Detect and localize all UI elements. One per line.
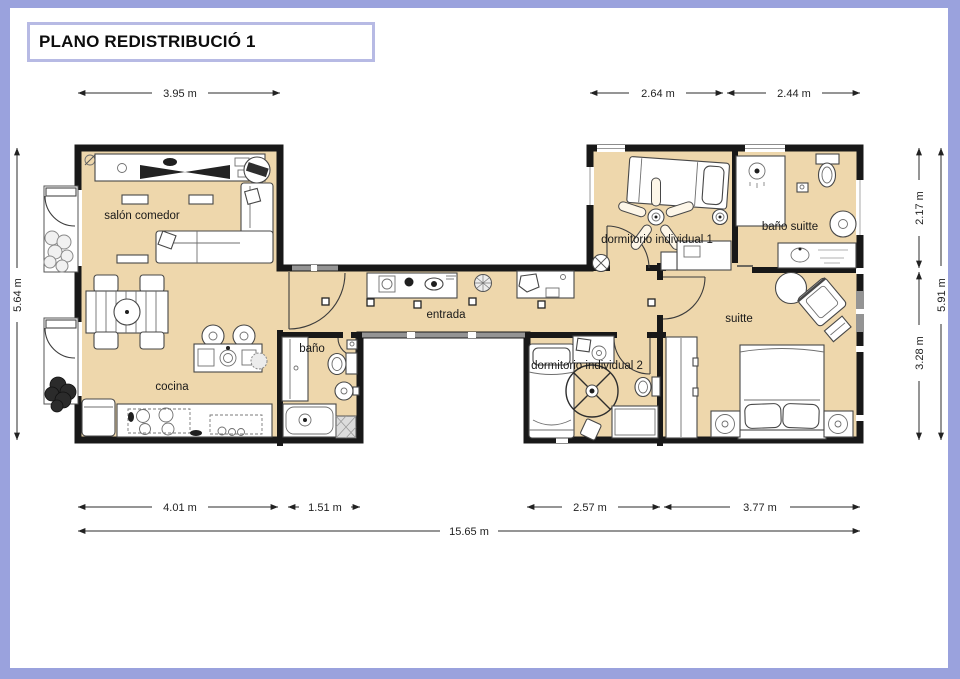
label-cocina: cocina xyxy=(155,381,189,393)
pillow xyxy=(245,188,261,204)
shower xyxy=(736,156,785,226)
toilet xyxy=(346,353,357,374)
floor-plan-page: salón comedor cocina baño entrada dormit… xyxy=(0,0,960,679)
plan-title: PLANO REDISTRIBUCIÓ 1 xyxy=(27,22,375,62)
rug xyxy=(612,406,658,438)
floor-plan-drawing: salón comedor cocina baño entrada dormit… xyxy=(0,0,960,679)
label-suitte: suitte xyxy=(725,313,753,325)
kitchen-counter xyxy=(82,399,272,437)
dim-top-dorm1: 2.64 m xyxy=(641,88,675,100)
dim-right-total: 5.91 m xyxy=(936,278,948,312)
fridge xyxy=(82,399,115,436)
page-frame-bottom xyxy=(0,668,960,679)
bed-single-2 xyxy=(529,344,574,438)
dim-bottom-bano: 1.51 m xyxy=(308,502,342,514)
bed-double xyxy=(738,345,826,439)
label-dorm2: dormitorio individual 2 xyxy=(531,360,643,372)
dim-top-salon: 3.95 m xyxy=(163,88,197,100)
toilet xyxy=(652,377,660,396)
bathtub xyxy=(283,404,336,437)
dim-right-top: 2.17 m xyxy=(914,191,926,225)
dim-bottom-total: 15.65 m xyxy=(449,526,489,538)
dim-left-total: 5.64 m xyxy=(12,278,24,312)
bed-single-1 xyxy=(627,156,730,209)
sink-small xyxy=(347,340,357,349)
dim-top-bano-suitte: 2.44 m xyxy=(777,88,811,100)
page-frame-left xyxy=(0,0,10,679)
pillow xyxy=(783,403,820,428)
wardrobe xyxy=(666,337,697,438)
console-table xyxy=(367,273,457,298)
bidet xyxy=(335,382,353,400)
label-entrada: entrada xyxy=(426,309,466,321)
label-bano-suitte: baño suitte xyxy=(762,221,818,233)
dim-bottom-suitte: 3.77 m xyxy=(743,502,777,514)
basket xyxy=(251,353,267,369)
pillow xyxy=(745,403,782,428)
dim-bottom-cocina: 4.01 m xyxy=(163,502,197,514)
dim-bottom-dorm2: 2.57 m xyxy=(573,502,607,514)
page-frame-top xyxy=(0,0,960,8)
page-frame-right xyxy=(948,0,960,679)
label-salon-comedor: salón comedor xyxy=(104,210,180,222)
basin xyxy=(830,211,856,237)
left-window-bays xyxy=(44,186,78,412)
label-bano: baño xyxy=(299,343,325,355)
dim-right-bottom: 3.28 m xyxy=(914,336,926,370)
label-dorm1: dormitorio individual 1 xyxy=(601,234,713,246)
vanity xyxy=(778,243,856,268)
